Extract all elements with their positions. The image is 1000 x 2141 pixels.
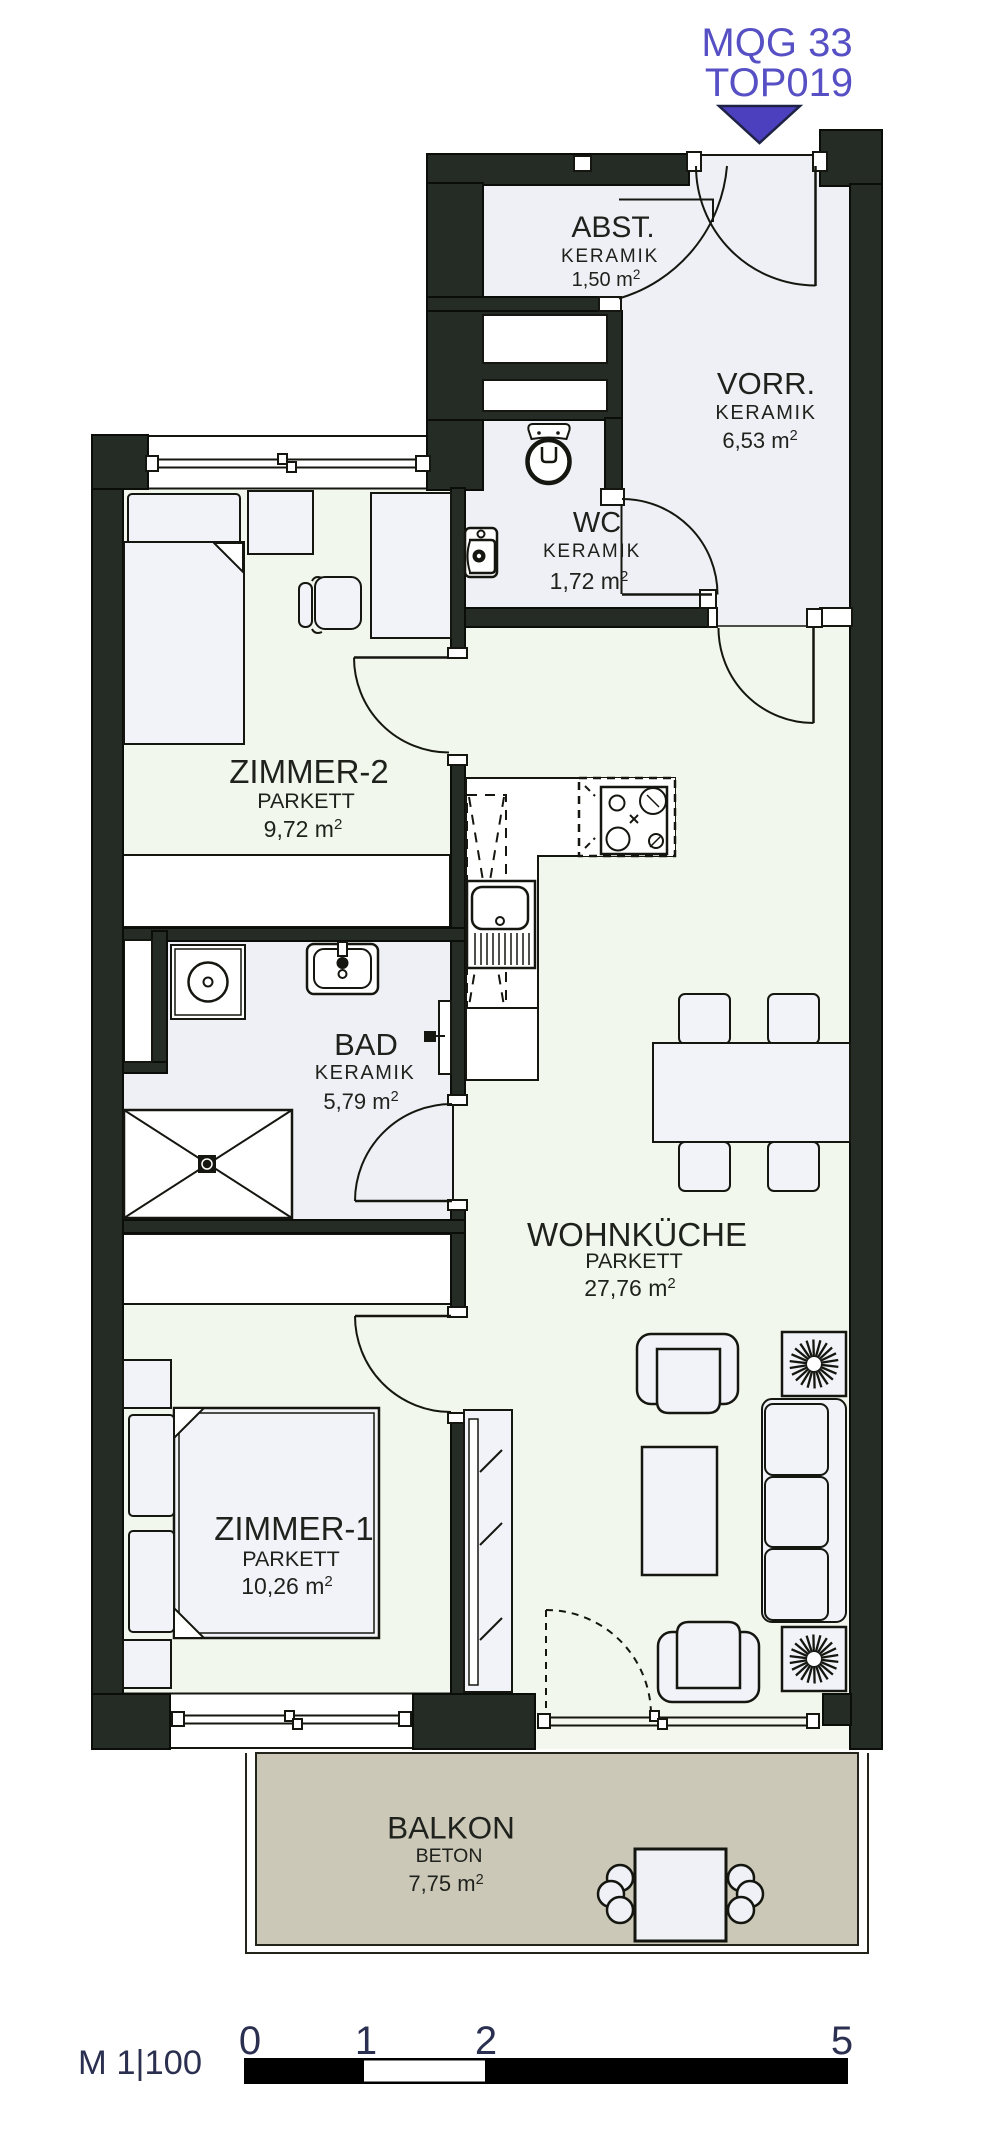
svg-text:6,53 m2: 6,53 m2 (722, 428, 797, 453)
svg-text:9,72 m2: 9,72 m2 (264, 816, 343, 842)
svg-text:VORR.: VORR. (717, 366, 815, 401)
svg-text:KERAMIK: KERAMIK (561, 246, 659, 267)
svg-text:ZIMMER-2: ZIMMER-2 (229, 753, 389, 790)
svg-text:KERAMIK: KERAMIK (315, 1062, 416, 1084)
svg-text:KERAMIK: KERAMIK (715, 402, 816, 424)
svg-text:BALKON: BALKON (387, 1810, 515, 1846)
svg-text:27,76 m2: 27,76 m2 (584, 1275, 675, 1301)
svg-text:1: 1 (355, 2019, 377, 2063)
svg-text:5: 5 (831, 2019, 853, 2063)
svg-text:ABST.: ABST. (571, 211, 654, 244)
svg-text:2: 2 (475, 2019, 497, 2063)
svg-text:7,75 m2: 7,75 m2 (408, 1871, 483, 1896)
svg-text:BETON: BETON (416, 1845, 483, 1867)
svg-text:PARKETT: PARKETT (242, 1547, 340, 1571)
svg-text:1,72 m2: 1,72 m2 (550, 568, 629, 594)
svg-text:5,79 m2: 5,79 m2 (323, 1089, 398, 1114)
svg-text:MQG 33: MQG 33 (701, 21, 852, 65)
svg-text:WOHNKÜCHE: WOHNKÜCHE (527, 1216, 747, 1253)
svg-text:0: 0 (239, 2019, 261, 2063)
svg-text:ZIMMER-1: ZIMMER-1 (214, 1510, 374, 1547)
svg-text:KERAMIK: KERAMIK (543, 541, 641, 562)
svg-text:BAD: BAD (334, 1027, 398, 1062)
svg-text:1,50 m2: 1,50 m2 (572, 267, 641, 291)
svg-text:10,26 m2: 10,26 m2 (241, 1573, 332, 1599)
svg-text:PARKETT: PARKETT (257, 789, 355, 813)
svg-text:M 1|100: M 1|100 (78, 2044, 202, 2082)
svg-text:TOP019: TOP019 (705, 61, 853, 105)
svg-text:WC: WC (573, 507, 621, 539)
svg-text:PARKETT: PARKETT (585, 1249, 683, 1273)
